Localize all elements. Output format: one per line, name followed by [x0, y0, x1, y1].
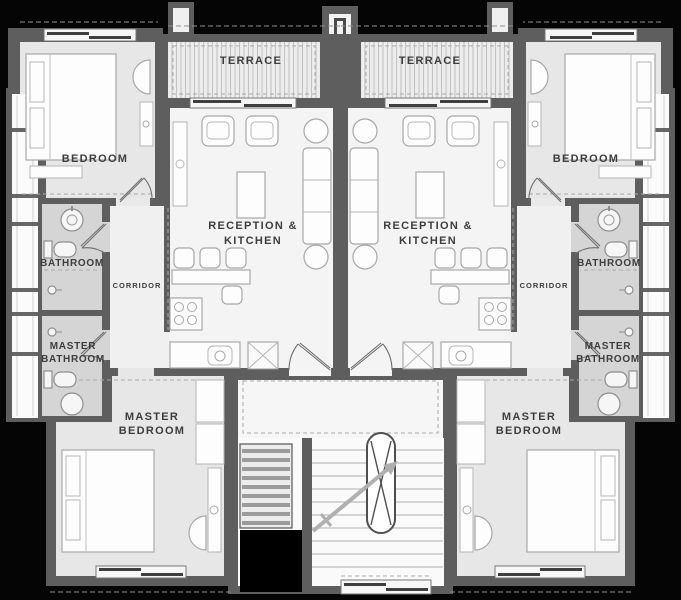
wall-stair-mid	[302, 438, 312, 588]
label-bathroom-left: BATHROOM	[40, 258, 104, 269]
label-reception-left-line1: RECEPTION &	[208, 220, 297, 232]
label-reception-right-line1: RECEPTION &	[383, 220, 472, 232]
label-terrace-right: TERRACE	[399, 55, 461, 67]
label-master-bedroom-left-line1: MASTER	[125, 411, 179, 423]
entrance-sliding-door-icon	[341, 580, 431, 594]
floor-plan-canvas: TERRACE BEDROOM RECEPTION & KITCHEN CORR…	[0, 0, 681, 600]
label-master-bathroom-right-line2: BATHROOM	[576, 354, 640, 365]
entrance-hall	[238, 376, 443, 438]
label-terrace-left: TERRACE	[220, 55, 282, 67]
stairs-icon	[240, 444, 292, 528]
label-master-bathroom-right-line1: MASTER	[585, 341, 632, 352]
label-reception-right-line2: KITCHEN	[399, 235, 457, 247]
label-master-bathroom-left-line2: BATHROOM	[41, 354, 105, 365]
floor-plan-svg: TERRACE BEDROOM RECEPTION & KITCHEN CORR…	[0, 0, 681, 600]
label-master-bedroom-left-line2: BEDROOM	[119, 425, 186, 437]
label-bedroom-right: BEDROOM	[553, 153, 620, 165]
label-master-bedroom-right-line1: MASTER	[502, 411, 556, 423]
label-corridor-right: CORRIDOR	[520, 281, 569, 290]
label-master-bedroom-right-line2: BEDROOM	[496, 425, 563, 437]
label-bedroom-left: BEDROOM	[62, 153, 129, 165]
label-bathroom-right: BATHROOM	[577, 258, 641, 269]
label-reception-left-line2: KITCHEN	[224, 235, 282, 247]
label-master-bathroom-left-line1: MASTER	[50, 341, 96, 352]
stair-void-black	[240, 530, 302, 592]
label-corridor-left: CORRIDOR	[113, 281, 162, 290]
